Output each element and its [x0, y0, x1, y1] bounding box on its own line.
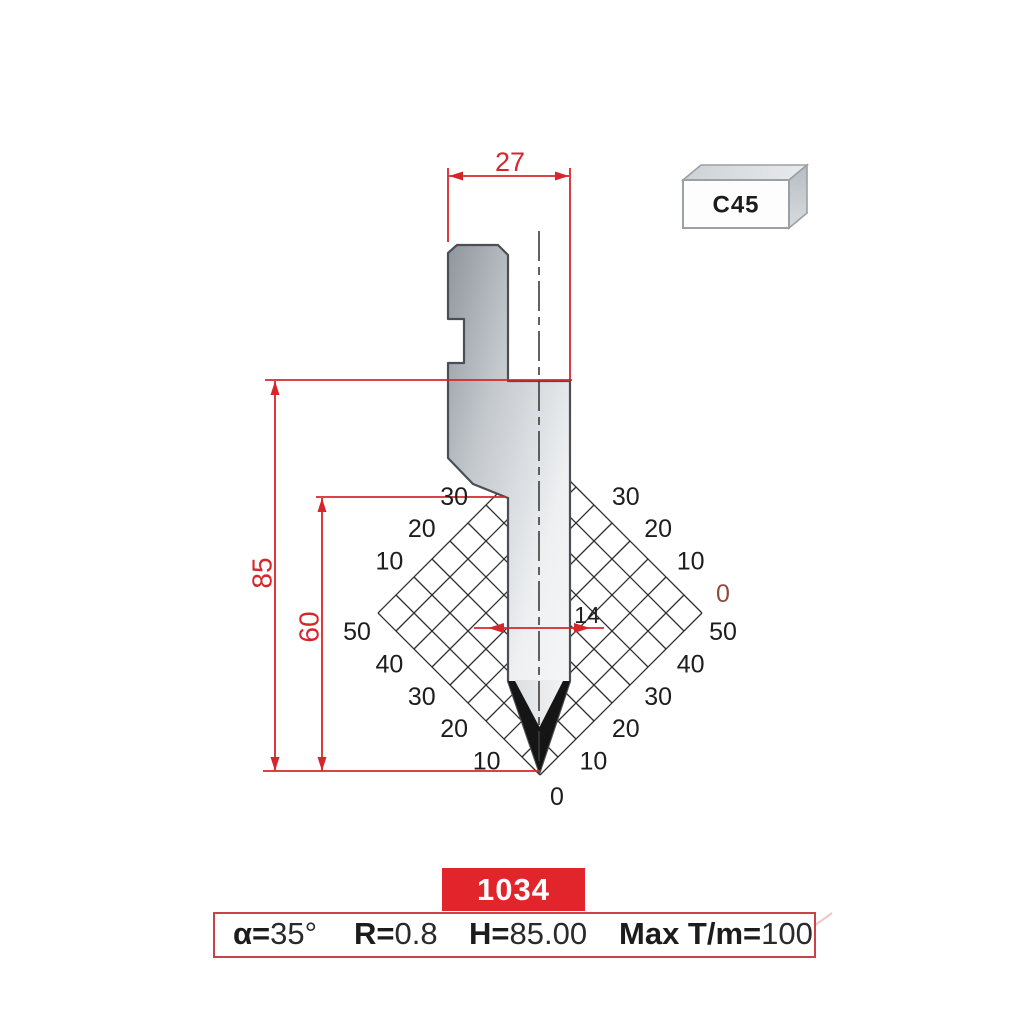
- grid-label: 10: [473, 748, 501, 776]
- badge-top-face: [683, 165, 807, 180]
- grid-label: 40: [677, 650, 705, 678]
- spec-bar: α=35°R=0.8H=85.00Max T/m=100: [213, 912, 816, 958]
- grid-label: 20: [644, 515, 672, 543]
- grid-label: 0: [550, 783, 564, 811]
- dim-85-text: 85: [247, 557, 278, 588]
- grid-label: 50: [343, 618, 371, 646]
- dim-27-text: 27: [495, 147, 525, 177]
- grid-label: 10: [579, 748, 607, 776]
- spec-value: 100: [761, 916, 813, 951]
- arrow-60-bottom: [318, 757, 327, 771]
- arrow-27-right: [555, 172, 569, 181]
- dim-60-text: 60: [294, 611, 325, 642]
- spec-item: α=35°: [233, 916, 317, 952]
- arrow-85-top: [271, 381, 280, 395]
- spec-label: H=: [469, 916, 510, 951]
- grid-label: 20: [440, 715, 468, 743]
- material-label: C45: [712, 192, 759, 219]
- grid-label: 0: [716, 580, 730, 608]
- grid-label: 30: [408, 683, 436, 711]
- grid-label: 30: [644, 683, 672, 711]
- spec-label: R=: [354, 916, 395, 951]
- arrow-14-left: [488, 623, 504, 633]
- spec-item: H=85.00: [469, 916, 587, 952]
- spec-value: 35°: [270, 916, 317, 951]
- grid-label: 20: [408, 515, 436, 543]
- spec-label: α=: [233, 916, 270, 951]
- material-badge: C45: [683, 165, 807, 228]
- spec-value: 0.8: [395, 916, 438, 951]
- grid-label: 30: [440, 483, 468, 511]
- dim-14-text: 14: [574, 602, 600, 628]
- spec-label: Max T/m=: [619, 916, 761, 951]
- arrow-85-bottom: [271, 757, 280, 771]
- grid-label: 10: [375, 548, 403, 576]
- grid-label: 50: [709, 618, 737, 646]
- arrow-27-left: [449, 172, 463, 181]
- catalog-page: 27 85 60 14 1020301020304050102030405001…: [0, 0, 1024, 1024]
- part-number-text: 1034: [477, 872, 550, 908]
- part-number-badge: 1034: [442, 868, 585, 911]
- grid-label: 20: [612, 715, 640, 743]
- spec-item: Max T/m=100: [619, 916, 813, 952]
- spec-item: R=0.8: [354, 916, 438, 952]
- grid-label: 40: [375, 650, 403, 678]
- grid-label: 10: [677, 548, 705, 576]
- arrow-60-top: [318, 498, 327, 512]
- grid-label: 30: [612, 483, 640, 511]
- spec-value: 85.00: [510, 916, 588, 951]
